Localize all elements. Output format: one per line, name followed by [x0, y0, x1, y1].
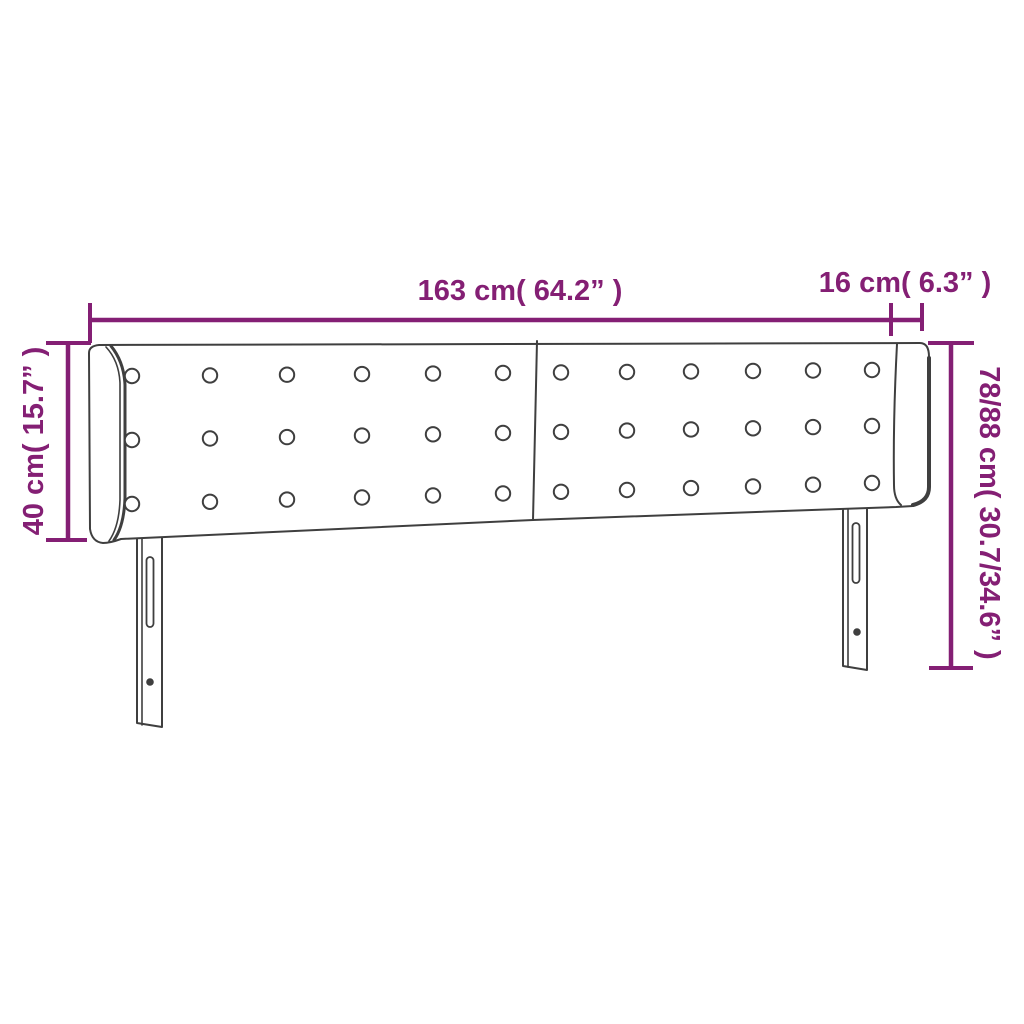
tufting-button [203, 431, 217, 445]
width-label: 163 cm( 64.2” ) [418, 275, 623, 307]
tufting-button [806, 478, 820, 492]
tufting-button [746, 421, 760, 435]
left-leg-screw-hole [146, 678, 154, 686]
tufting-button [280, 368, 294, 382]
tufting-button [554, 425, 568, 439]
front-height-label: 40 cm( 15.7” ) [18, 347, 50, 536]
tufting-button [125, 369, 139, 383]
tufting-button [865, 419, 879, 433]
tufting-button [426, 427, 440, 441]
tufting-button [684, 422, 698, 436]
tufting-button [496, 486, 510, 500]
tufting-button [203, 495, 217, 509]
tufting-button [496, 366, 510, 380]
tufting-button [496, 426, 510, 440]
tufting-button [203, 368, 217, 382]
tufting-button [684, 481, 698, 495]
total-height-label: 78/88 cm( 30.7/34.6” ) [973, 366, 1005, 659]
diagram-canvas: 163 cm( 64.2” ) 16 cm( 6.3” ) 40 cm( 15.… [0, 0, 1024, 1024]
tufting-button [280, 492, 294, 506]
headboard-dimension-diagram: 163 cm( 64.2” ) 16 cm( 6.3” ) 40 cm( 15.… [0, 0, 1024, 1024]
right-leg-screw-hole [853, 628, 861, 636]
tufting-button [355, 490, 369, 504]
left-leg [137, 532, 162, 727]
tufting-button [280, 430, 294, 444]
tufting-button [684, 364, 698, 378]
headboard-drawing [89, 341, 929, 727]
tufting-button [620, 483, 634, 497]
tufting-button [865, 363, 879, 377]
tufting-button [746, 479, 760, 493]
tufting-button [426, 366, 440, 380]
tufting-button [746, 364, 760, 378]
right-leg [843, 503, 867, 670]
tufting-button [865, 476, 879, 490]
tufting-button [806, 363, 820, 377]
tufting-button [620, 365, 634, 379]
tufting-button [554, 485, 568, 499]
tufting-button [355, 367, 369, 381]
tufting-button [554, 365, 568, 379]
tufting-button [620, 423, 634, 437]
tufting-button [125, 497, 139, 511]
tufting-button [806, 420, 820, 434]
tufting-button [426, 488, 440, 502]
depth-label: 16 cm( 6.3” ) [819, 267, 991, 299]
tufting-button [355, 428, 369, 442]
tufting-button [125, 433, 139, 447]
